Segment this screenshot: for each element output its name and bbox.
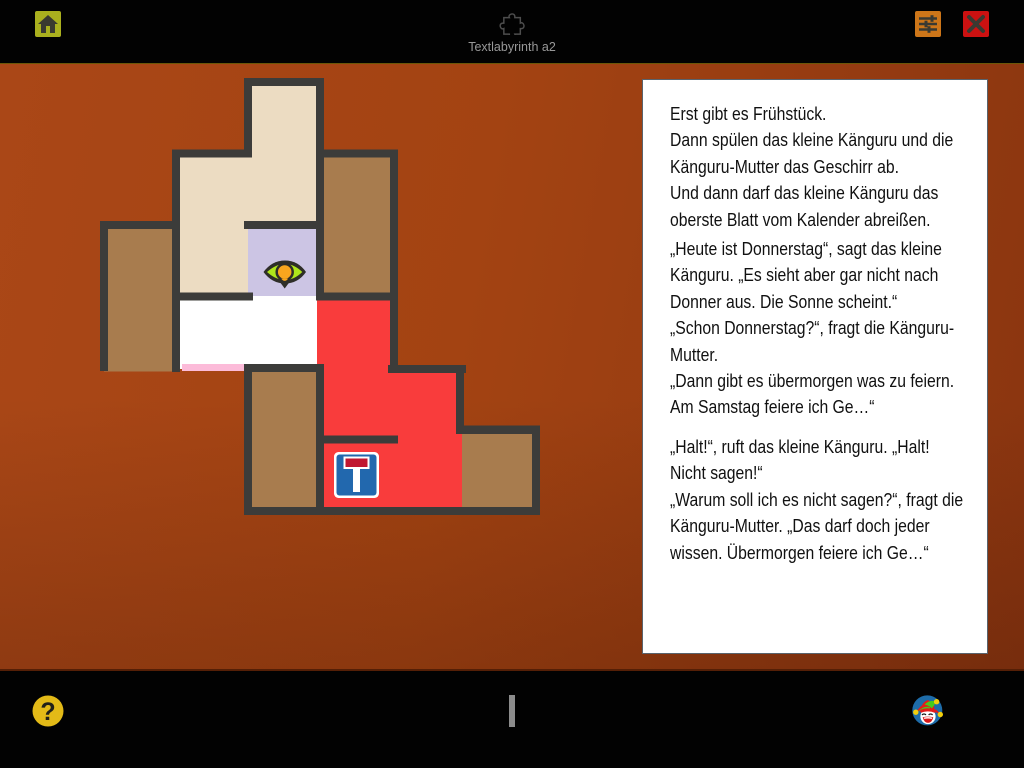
- svg-text:?: ?: [40, 698, 55, 726]
